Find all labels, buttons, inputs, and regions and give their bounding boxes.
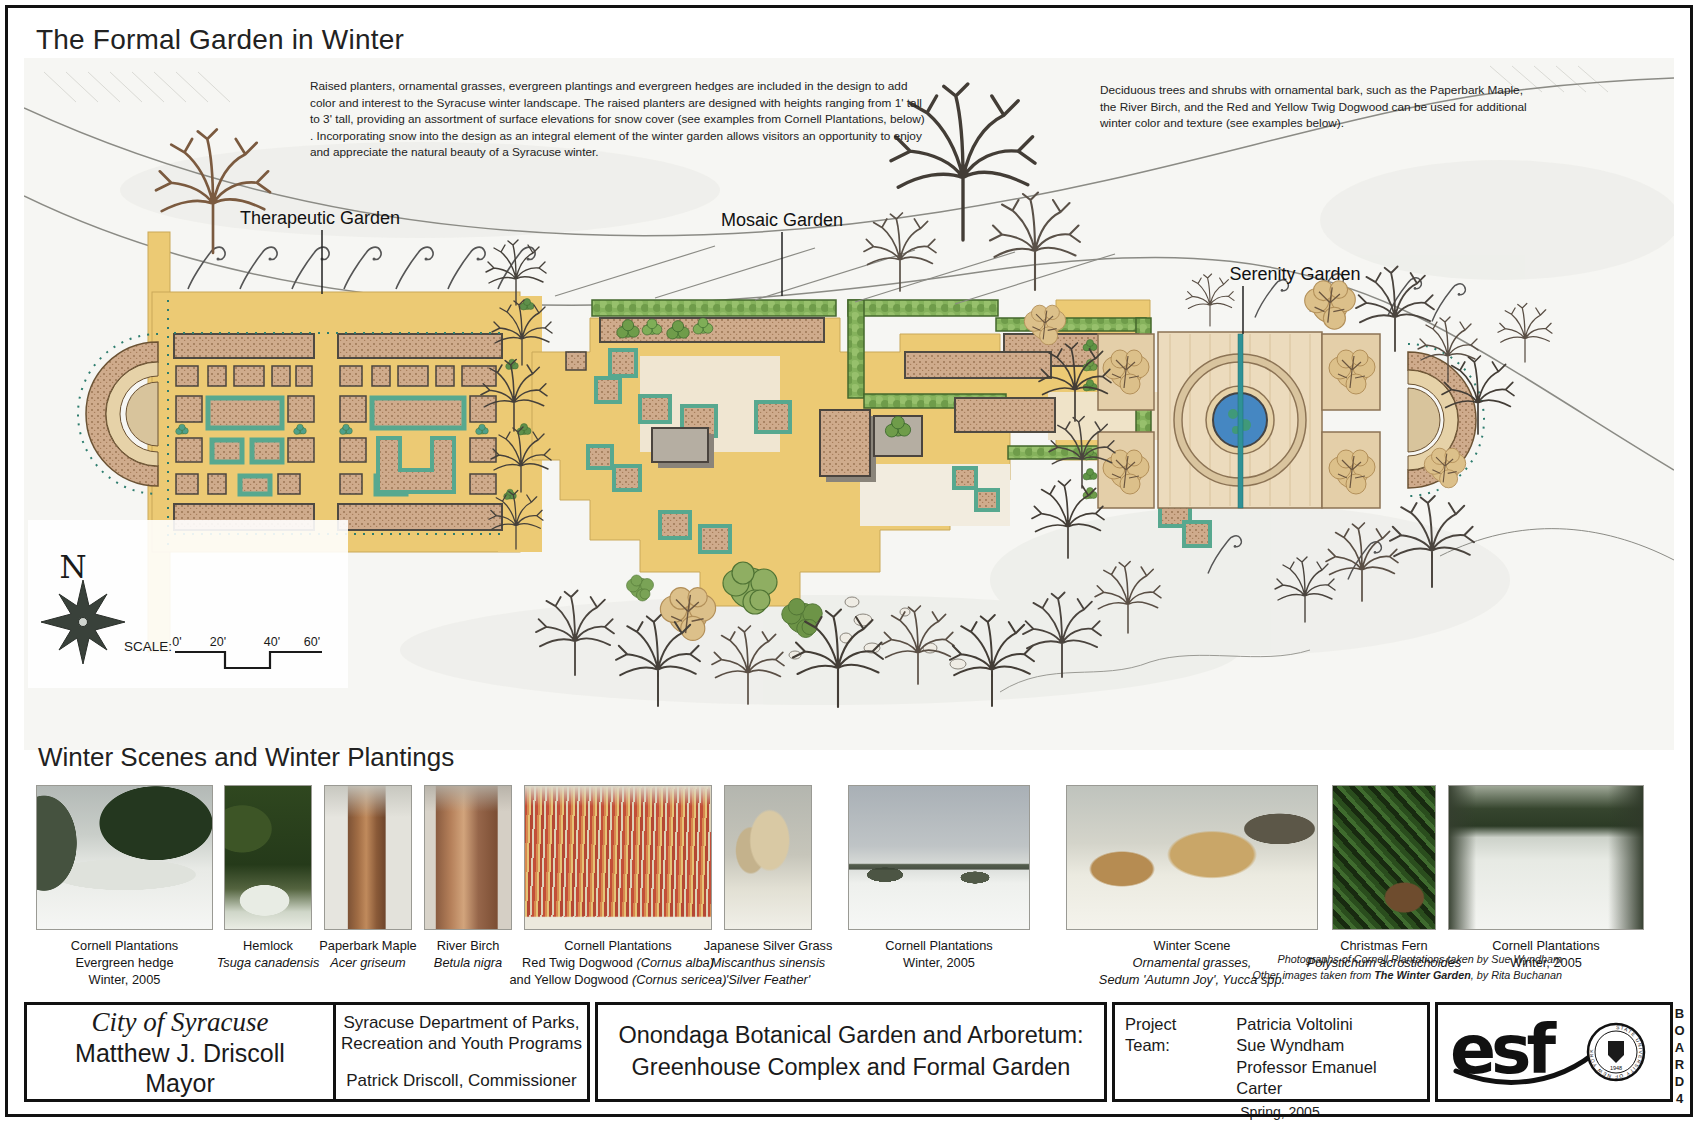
intro-paragraph-left: Raised planters, ornamental grasses, eve… bbox=[310, 78, 928, 161]
team-member: Patricia Voltolini bbox=[1236, 1014, 1417, 1035]
photo-card-paperbark-maple: Paperbark MapleAcer griseum bbox=[324, 785, 412, 930]
photo-evergreen-hedge bbox=[36, 785, 213, 930]
photo-cornell-winter-path bbox=[1448, 785, 1644, 930]
city-cell: City of Syracuse Matthew J. Driscoll May… bbox=[27, 1005, 336, 1099]
board-number: BOARD 4 bbox=[1672, 1006, 1687, 1098]
svg-text:40': 40' bbox=[264, 635, 280, 649]
photo-cornell-winter bbox=[848, 785, 1030, 930]
intro-paragraph-right: Deciduous trees and shrubs with ornament… bbox=[1100, 82, 1540, 132]
mayor-title: Mayor bbox=[145, 1069, 214, 1098]
commissioner-name: Patrick Driscoll, Commissioner bbox=[346, 1070, 576, 1091]
project-title-line: Onondaga Botanical Garden and Arboretum: bbox=[618, 1020, 1083, 1052]
photo-silver-grass bbox=[724, 785, 812, 930]
photo-card-twig-dogwood: Cornell Plantations Red Twig Dogwood (Co… bbox=[524, 785, 712, 930]
board-title: The Formal Garden in Winter bbox=[36, 24, 404, 56]
site-plan: Therapeutic Garden Mosaic Garden Serenit… bbox=[24, 58, 1674, 750]
label-therapeutic-garden: Therapeutic Garden bbox=[240, 208, 400, 228]
photo-card-silver-grass: Japanese Silver GrassMiscanthus sinensis… bbox=[724, 785, 812, 930]
svg-text:N: N bbox=[59, 549, 86, 585]
department-line: Recreation and Youth Programs bbox=[341, 1033, 582, 1054]
photo-caption: Cornell PlantationsWinter, 2005 bbox=[885, 937, 992, 971]
photo-card-hemlock: HemlockTsuga canadensis bbox=[224, 785, 312, 930]
photo-card-evergreen-hedge: Cornell PlantationsEvergreen hedgeWinter… bbox=[36, 785, 213, 930]
photo-hemlock bbox=[224, 785, 312, 930]
team-member: Sue Wyndham bbox=[1236, 1035, 1417, 1056]
photo-caption: HemlockTsuga canadensis bbox=[217, 937, 320, 971]
seal-year: 1948 bbox=[1610, 1065, 1622, 1071]
svg-text:60': 60' bbox=[304, 635, 320, 649]
photo-card-winter-scene: Winter SceneOrnamental grasses,Sedum 'Au… bbox=[1066, 785, 1318, 930]
photo-paperbark-maple bbox=[324, 785, 412, 930]
photo-credits: Photographs of Cornell Plantations taken… bbox=[1252, 951, 1562, 983]
team-member: Professor Emanuel Carter bbox=[1236, 1057, 1417, 1100]
photo-caption: Paperbark MapleAcer griseum bbox=[319, 937, 416, 971]
svg-text:SCALE:: SCALE: bbox=[124, 639, 172, 654]
svg-text:0': 0' bbox=[172, 635, 181, 649]
photo-twig-dogwood bbox=[524, 785, 712, 930]
photo-winter-scene bbox=[1066, 785, 1318, 930]
svg-text:20': 20' bbox=[210, 635, 226, 649]
photo-card-cornell-winter-1: Cornell PlantationsWinter, 2005 bbox=[848, 785, 1030, 930]
photo-caption: River BirchBetula nigra bbox=[434, 937, 502, 971]
project-title-line: Greenhouse Complex and Formal Garden bbox=[632, 1052, 1071, 1084]
department-cell: Syracuse Department of Parks, Recreation… bbox=[336, 1005, 587, 1099]
photo-card-river-birch: River BirchBetula nigra bbox=[424, 785, 512, 930]
city-name: City of Syracuse bbox=[92, 1007, 269, 1038]
photo-card-cornell-winter-2: Cornell PlantationsWinter, 2005 bbox=[1448, 785, 1644, 930]
water-channel bbox=[1238, 334, 1243, 508]
label-serenity-garden: Serenity Garden bbox=[1229, 264, 1360, 284]
photo-caption: Japanese Silver GrassMiscanthus sinensis… bbox=[704, 937, 833, 988]
team-label: Project Team: bbox=[1125, 1014, 1220, 1090]
label-mosaic-garden: Mosaic Garden bbox=[721, 210, 843, 230]
university-seal: STATE UNIVERSITY OF NEW YORK 1948 bbox=[1588, 1024, 1644, 1080]
photo-christmas-fern bbox=[1332, 785, 1436, 930]
project-team-cell: Project Team: Patricia Voltolini Sue Wyn… bbox=[1112, 1002, 1430, 1102]
project-date: Spring, 2005 bbox=[1240, 1103, 1417, 1121]
project-title-cell: Onondaga Botanical Garden and Arboretum:… bbox=[595, 1002, 1107, 1102]
photo-card-christmas-fern: Christmas FernPolystichum acrostichoides bbox=[1332, 785, 1436, 930]
esf-logo-cell: esf STATE UNIVERSITY OF NEW YORK 1948 bbox=[1435, 1002, 1673, 1102]
photo-river-birch bbox=[424, 785, 512, 930]
gallery-heading: Winter Scenes and Winter Plantings bbox=[38, 742, 454, 773]
esf-logo: esf STATE UNIVERSITY OF NEW YORK 1948 bbox=[1444, 1009, 1664, 1095]
photo-caption: Cornell Plantations Red Twig Dogwood (Co… bbox=[510, 937, 727, 988]
mayor-name: Matthew J. Driscoll bbox=[75, 1039, 285, 1068]
title-block: City of Syracuse Matthew J. Driscoll May… bbox=[24, 1002, 1673, 1102]
department-line: Syracuse Department of Parks, bbox=[343, 1012, 579, 1033]
photo-caption: Cornell PlantationsEvergreen hedgeWinter… bbox=[71, 937, 178, 988]
